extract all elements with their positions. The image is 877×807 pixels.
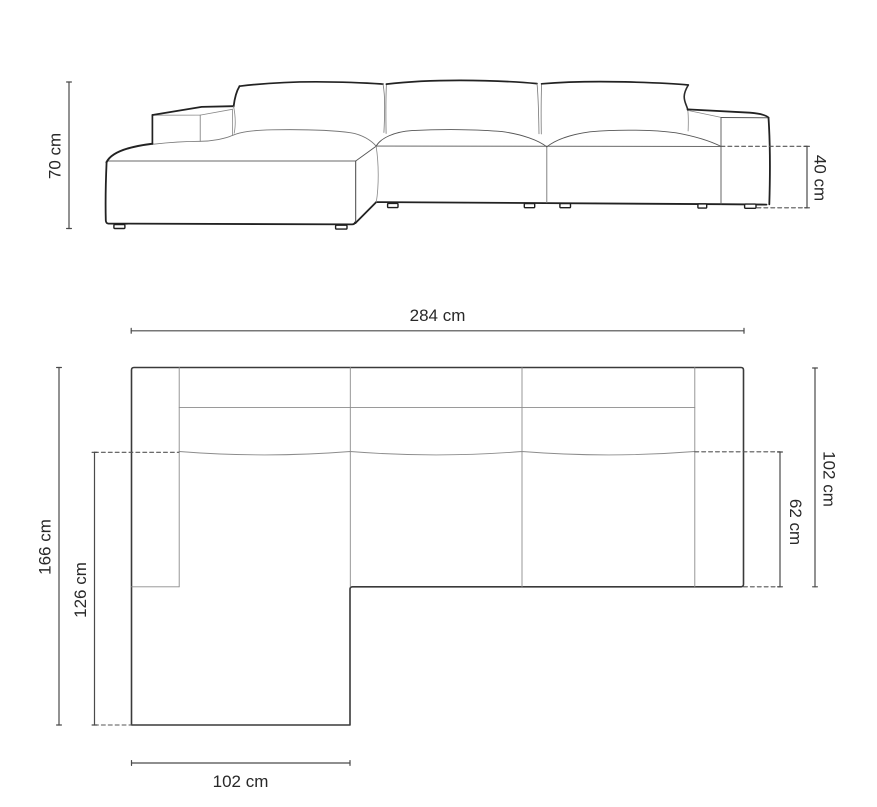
svg-text:102 cm: 102 cm	[820, 451, 839, 507]
svg-text:102 cm: 102 cm	[213, 772, 269, 791]
svg-text:126 cm: 126 cm	[71, 562, 90, 618]
svg-text:62 cm: 62 cm	[786, 499, 805, 545]
svg-text:166 cm: 166 cm	[36, 519, 55, 575]
svg-text:40 cm: 40 cm	[811, 155, 830, 201]
svg-text:284 cm: 284 cm	[410, 306, 466, 325]
svg-text:70 cm: 70 cm	[46, 133, 65, 179]
